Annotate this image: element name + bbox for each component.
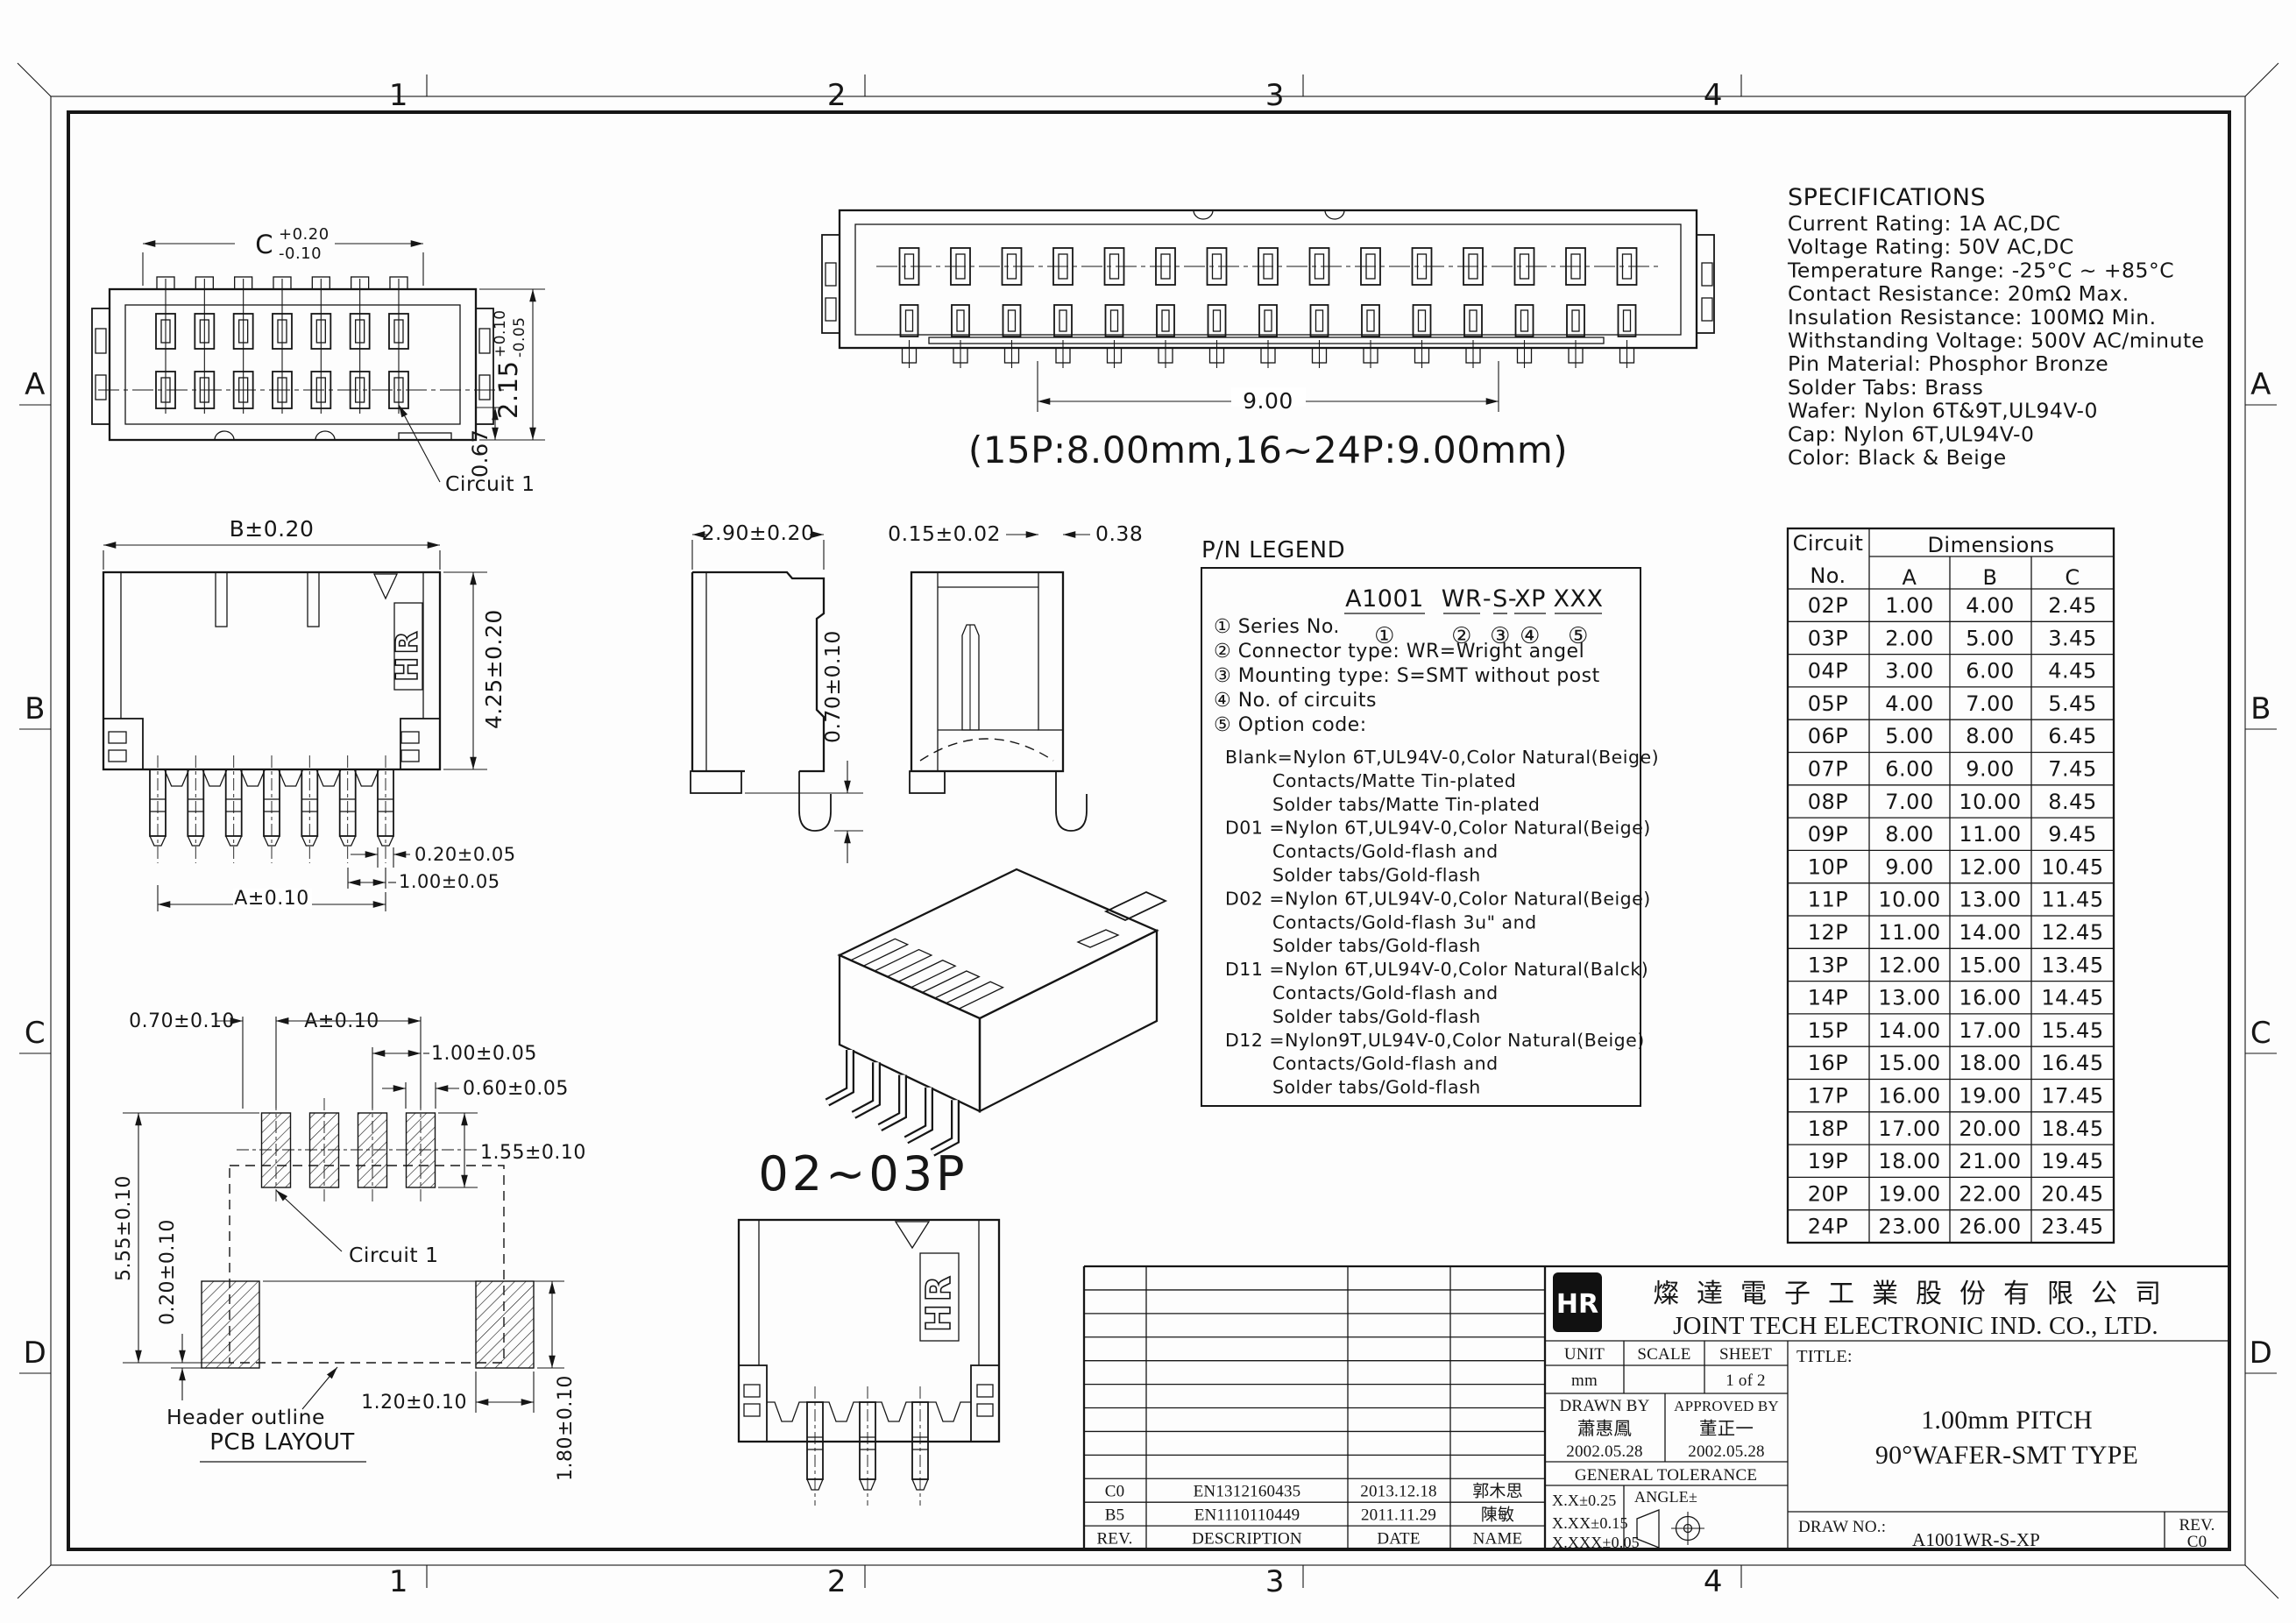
table-cell: 18.45: [2041, 1116, 2103, 1141]
table-cell: 1.00: [1885, 593, 1933, 618]
dim-b: B±0.20: [230, 516, 315, 542]
zone-label-bottom: 4: [1704, 1564, 1723, 1599]
pin-bottom-detail: [1214, 310, 1221, 331]
pn-option: Contacts/Gold-flash and: [1272, 982, 1499, 1003]
drawing-sheet: 12341234ABCDABCD C +0.20 -0.10 2.15 +0.1…: [0, 0, 2296, 1623]
table-cell: 12.00: [1959, 854, 2021, 879]
dim-038: 0.38: [1095, 521, 1143, 546]
company-logo-text: HR: [1556, 1289, 1598, 1320]
table-cell: 07P: [1808, 757, 1849, 782]
rev-cell: C0: [1105, 1483, 1125, 1501]
pn-seg4: XP: [1514, 585, 1546, 613]
table-cell: 12.00: [1878, 953, 1940, 977]
dim-c-tol-up: +0.20: [279, 225, 330, 244]
iso-slot: [851, 939, 908, 966]
trim-mark: [18, 63, 51, 96]
pn-option: Solder tabs/Matte Tin-plated: [1272, 794, 1540, 815]
table-cell: 5.45: [2048, 691, 2096, 716]
table-cell: 10P: [1808, 854, 1849, 879]
table-cell: 14.45: [2041, 986, 2103, 1010]
pn-seg1: A1001: [1345, 585, 1424, 613]
approved-name: 董正一: [1699, 1419, 1754, 1439]
table-cell: 8.45: [2048, 790, 2096, 814]
tol-3: X.XXX±0.05: [1552, 1534, 1640, 1551]
table-cell: 9.45: [2048, 822, 2096, 847]
dim-020: 0.20±0.05: [415, 844, 516, 865]
iso-slot: [875, 950, 932, 977]
rev-header: DESCRIPTION: [1192, 1530, 1302, 1549]
th-dimensions: Dimensions: [1927, 533, 2054, 557]
drawn-date: 2002.05.28: [1566, 1442, 1643, 1461]
dim-215: 2.15: [493, 360, 523, 419]
pin-bottom-detail: [1419, 310, 1426, 331]
table-cell: 19P: [1808, 1149, 1849, 1173]
zone-label-top: 1: [389, 78, 408, 113]
th-circuit: Circuit: [1793, 531, 1864, 556]
spec-line: Pin Material: Phosphor Bronze: [1788, 351, 2108, 376]
table-cell: 03P: [1808, 626, 1849, 650]
spec-line: Cap: Nylon 6T,UL94V-0: [1788, 422, 2034, 446]
trim-mark: [2245, 63, 2278, 96]
table-cell: 13.45: [2041, 953, 2103, 977]
pn-legend: P/N LEGEND A1001 WR - S - XP XXX ① ② ③ ④…: [1201, 537, 1659, 1106]
table-cell: 3.00: [1885, 659, 1933, 684]
table-cell: 5.00: [1966, 626, 2014, 650]
table-cell: 24P: [1808, 1215, 1849, 1239]
pn-option: Solder tabs/Gold-flash: [1272, 1077, 1481, 1098]
unit-value: mm: [1571, 1371, 1598, 1390]
table-cell: 9.00: [1885, 854, 1933, 879]
table-cell: 2.45: [2048, 593, 2096, 618]
draw-no-value: A1001WR-S-XP: [1912, 1529, 2040, 1550]
dim-067: 0.67: [468, 429, 493, 478]
spec-title: SPECIFICATIONS: [1788, 184, 1986, 211]
table-cell: 5.00: [1885, 724, 1933, 748]
iso-slot: [898, 960, 955, 988]
pin-bottom-detail: [1572, 310, 1579, 331]
table-cell: 23.45: [2041, 1215, 2103, 1239]
th-a: A: [1903, 565, 1917, 590]
iso-slot: [946, 982, 1003, 1009]
table-cell: 9.00: [1966, 757, 2014, 782]
pn-item: ② Connector type: WR=Wright angel: [1214, 641, 1584, 663]
rev-cell: 2011.11.29: [1361, 1506, 1436, 1525]
sheet-value: 1 of 2: [1726, 1371, 1766, 1390]
hr-logo: HR: [390, 628, 425, 682]
spec-line: Color: Black & Beige: [1788, 445, 2007, 470]
table-cell: 12P: [1808, 920, 1849, 945]
unit-label: UNIT: [1564, 1345, 1605, 1364]
pn-option: D12 =Nylon9T,UL94V-0,Color Natural(Beige…: [1225, 1030, 1645, 1051]
pn-option: D01 =Nylon 6T,UL94V-0,Color Natural(Beig…: [1225, 818, 1651, 839]
table-cell: 4.45: [2048, 659, 2096, 684]
table-cell: 17.00: [1878, 1116, 1940, 1141]
drawn-name: 蕭惠鳳: [1577, 1419, 1632, 1439]
pn-option: Contacts/Gold-flash and: [1272, 1053, 1499, 1074]
pin-bottom-detail: [1470, 310, 1477, 331]
table-cell: 13P: [1808, 953, 1849, 977]
spec-line: Insulation Resistance: 100MΩ Min.: [1788, 305, 2157, 330]
table-cell: 06P: [1808, 724, 1849, 748]
dim-a: A±0.10: [234, 888, 308, 910]
zone-label-top: 2: [827, 78, 847, 113]
table-cell: 8.00: [1966, 724, 2014, 748]
pin-bottom-detail: [1367, 310, 1374, 331]
trim-mark: [18, 1565, 51, 1598]
zone-label-right: D: [2250, 1336, 2273, 1371]
th-b: B: [1983, 565, 1998, 590]
company-name-cn: 燦達電子工業股份有限公司: [1653, 1279, 2179, 1308]
table-cell: 08P: [1808, 790, 1849, 814]
rev-cell: EN1110110449: [1194, 1506, 1300, 1525]
table-cell: 22.00: [1959, 1181, 2021, 1206]
table-cell: 04P: [1808, 659, 1849, 684]
table-cell: 20P: [1808, 1181, 1849, 1206]
zone-label-left: C: [25, 1016, 46, 1051]
pcb-tab-pad: [202, 1281, 259, 1368]
spec-line: Voltage Rating: 50V AC,DC: [1788, 235, 2074, 259]
table-cell: 13.00: [1878, 986, 1940, 1010]
spec-line: Current Rating: 1A AC,DC: [1788, 211, 2060, 236]
dim-015: 0.15±0.02: [888, 521, 1001, 546]
table-cell: 18.00: [1878, 1149, 1940, 1173]
table-cell: 16P: [1808, 1051, 1849, 1075]
pcb-title: PCB LAYOUT: [209, 1429, 355, 1456]
table-cell: 7.45: [2048, 757, 2096, 782]
dim-c: C: [255, 230, 273, 259]
table-cell: 4.00: [1966, 593, 2014, 618]
pcb-dim-padh: 1.55±0.10: [480, 1142, 586, 1164]
zone-label-right: C: [2250, 1016, 2271, 1051]
pn-option: Solder tabs/Gold-flash: [1272, 865, 1481, 886]
pin-bottom-detail: [1059, 310, 1067, 331]
table-cell: 15.00: [1878, 1051, 1940, 1075]
zone-label-bottom: 1: [389, 1564, 408, 1599]
pin-bottom-detail: [1316, 310, 1323, 331]
draw-no-label: DRAW NO.:: [1798, 1518, 1886, 1536]
approved-date: 2002.05.28: [1688, 1442, 1765, 1461]
pn-item: ③ Mounting type: S=SMT without post: [1214, 665, 1600, 687]
table-cell: 26.00: [1959, 1215, 2021, 1239]
zone-label-bottom: 3: [1265, 1564, 1285, 1599]
top-view: C +0.20 -0.10 2.15 +0.10 -0.05 0.67 Circ…: [92, 225, 545, 496]
spec-line: Wafer: Nylon 6T&9T,UL94V-0: [1788, 399, 2098, 423]
table-cell: 15.45: [2041, 1018, 2103, 1043]
table-cell: 20.00: [1959, 1116, 2021, 1141]
table-cell: 14.00: [1878, 1018, 1940, 1043]
zone-label-right: A: [2250, 367, 2271, 402]
angle-label: ANGLE±: [1634, 1488, 1697, 1506]
pn-option: Contacts/Gold-flash 3u" and: [1272, 911, 1537, 932]
rev-header: REV.: [1096, 1530, 1132, 1549]
table-cell: 19.00: [1959, 1084, 2021, 1109]
table-cell: 17.00: [1959, 1018, 2021, 1043]
table-cell: 12.45: [2041, 920, 2103, 945]
rev-cell: 陳敏: [1481, 1506, 1514, 1525]
table-cell: 05P: [1808, 691, 1849, 716]
zone-label-bottom: 2: [827, 1564, 847, 1599]
pcb-layout: 0.70±0.10 A±0.10 1.00±0.05 0.60±0.05 1.5…: [113, 1010, 586, 1481]
table-cell: 02P: [1808, 593, 1849, 618]
table-cell: 18P: [1808, 1116, 1849, 1141]
table-cell: 15.00: [1959, 953, 2021, 977]
pn-seg5: XXX: [1554, 585, 1604, 613]
side-view: 2.90±0.20 0.70±0.10: [691, 521, 863, 863]
pin-bottom-detail: [1521, 310, 1528, 331]
table-cell: 6.45: [2048, 724, 2096, 748]
drawn-label: DRAWN BY: [1560, 1397, 1650, 1415]
rev-label: REV.: [2179, 1516, 2215, 1534]
pcb-dim-tabw: 1.20±0.10: [361, 1392, 467, 1414]
bottom-scallop: [767, 1402, 971, 1421]
pin-bottom-detail: [957, 310, 964, 331]
pcb-dim-gap: 0.20±0.10: [157, 1219, 179, 1325]
table-cell: 17.45: [2041, 1084, 2103, 1109]
table-cell: 14.00: [1959, 920, 2021, 945]
trim-mark: [2245, 1565, 2278, 1598]
approved-label: APPROVED BY: [1674, 1398, 1779, 1414]
pcb-dim-height: 5.55±0.10: [113, 1175, 135, 1281]
isometric-view: [827, 869, 1166, 1152]
spec-line: Solder Tabs: Brass: [1788, 375, 1983, 400]
pin-bottom-detail: [1265, 310, 1272, 331]
variant-view: 02~03P HR: [739, 1146, 999, 1506]
specifications: SPECIFICATIONS Current Rating: 1A AC,DCV…: [1787, 184, 2205, 470]
table-cell: 6.00: [1966, 659, 2014, 684]
section-view: 0.15±0.02 0.38: [888, 521, 1143, 831]
table-cell: 19.45: [2041, 1149, 2103, 1173]
pn-option: D11 =Nylon 6T,UL94V-0,Color Natural(Balc…: [1225, 959, 1648, 980]
table-cell: 21.00: [1959, 1149, 2021, 1173]
pn-sep1: -: [1483, 585, 1492, 613]
dim-215-tol-dn: -0.05: [511, 317, 528, 358]
zone-label-right: B: [2250, 691, 2271, 726]
spec-line: Temperature Range: -25°C ~ +85°C: [1787, 258, 2174, 282]
pn-item: ① Series No.: [1214, 616, 1340, 638]
long-view: 9.00 (15P:8.00mm,16~24P:9.00mm): [822, 210, 1714, 471]
company-name-en: JOINT TECH ELECTRONIC IND. CO., LTD.: [1673, 1312, 2158, 1340]
table-cell: 4.00: [1885, 691, 1933, 716]
rev-cell: 2013.12.18: [1360, 1483, 1437, 1501]
th-c: C: [2065, 565, 2080, 590]
dim-290: 2.90±0.20: [702, 521, 815, 545]
pcb-header-outline: Header outline: [167, 1405, 325, 1429]
pn-seg3: S: [1492, 585, 1508, 613]
pcb-tab-pad: [476, 1281, 534, 1368]
rev-cell: 郭木思: [1472, 1482, 1523, 1501]
table-cell: 19.00: [1878, 1181, 1940, 1206]
drawing-canvas: 12341234ABCDABCD C +0.20 -0.10 2.15 +0.1…: [0, 0, 2296, 1623]
table-cell: 3.45: [2048, 626, 2096, 650]
rev-header: NAME: [1473, 1530, 1523, 1549]
table-cell: 11.00: [1878, 920, 1940, 945]
pitch-note: (15P:8.00mm,16~24P:9.00mm): [968, 429, 1568, 471]
revision-table: REV.DESCRIPTIONDATENAMEC0EN1312160435201…: [1084, 1266, 1545, 1549]
table-cell: 8.00: [1885, 822, 1933, 847]
dim-c-tol-dn: -0.10: [279, 245, 322, 263]
table-cell: 13.00: [1959, 888, 2021, 912]
pcb-dim-tabh: 1.80±0.10: [555, 1375, 577, 1481]
dimensions-table: Circuit No. Dimensions A B C 02P1.004.00…: [1788, 528, 2114, 1243]
pn-option: D02 =Nylon 6T,UL94V-0,Color Natural(Beig…: [1225, 888, 1651, 909]
general-tolerance: GENERAL TOLERANCE: [1575, 1466, 1757, 1485]
variant-label: 02~03P: [758, 1146, 967, 1201]
pcb-dim-pitch: 1.00±0.05: [431, 1043, 537, 1065]
title-line1: 1.00mm PITCH: [1921, 1406, 2093, 1435]
table-cell: 10.45: [2041, 854, 2103, 879]
table-cell: 2.00: [1885, 626, 1933, 650]
table-cell: 10.00: [1878, 888, 1940, 912]
pin-bottom-detail: [1162, 310, 1169, 331]
dim-900: 9.00: [1243, 388, 1293, 414]
pin-bottom-detail: [1624, 310, 1631, 331]
rev-value: C0: [2187, 1533, 2207, 1551]
pn-option: Blank=Nylon 6T,UL94V-0,Color Natural(Bei…: [1225, 747, 1659, 768]
pn-title: P/N LEGEND: [1201, 537, 1345, 563]
circuit1-label: Circuit 1: [445, 471, 535, 496]
sheet-label: SHEET: [1719, 1345, 1772, 1364]
table-cell: 11.45: [2041, 888, 2103, 912]
title-line2: 90°WAFER-SMT TYPE: [1875, 1441, 2138, 1470]
table-cell: 18.00: [1959, 1051, 2021, 1075]
table-cell: 11.00: [1959, 822, 2021, 847]
tol-2: X.XX±0.15: [1552, 1514, 1628, 1532]
pn-option: Solder tabs/Gold-flash: [1272, 935, 1481, 956]
pcb-circuit1: Circuit 1: [349, 1243, 439, 1267]
front-view: B±0.20 HR 4.25±0.20 0.20±0.05 1.00±0.05 …: [103, 516, 516, 911]
pn-item: ⑤ Option code:: [1214, 714, 1367, 736]
pin-bottom-detail: [906, 310, 913, 331]
iso-slot: [922, 971, 979, 998]
table-cell: 11P: [1808, 888, 1849, 912]
rev-cell: B5: [1105, 1506, 1125, 1525]
table-cell: 7.00: [1966, 691, 2014, 716]
dim-100: 1.00±0.05: [399, 871, 500, 892]
spec-line: Contact Resistance: 20mΩ Max.: [1788, 281, 2129, 306]
dim-070: 0.70±0.10: [820, 630, 845, 743]
pn-option: Contacts/Matte Tin-plated: [1272, 770, 1516, 791]
rev-header: DATE: [1377, 1530, 1420, 1549]
zone-label-top: 4: [1704, 78, 1723, 113]
table-cell: 20.45: [2041, 1181, 2103, 1206]
table-cell: 17P: [1808, 1084, 1849, 1109]
third-angle-projection-icon: [1637, 1510, 1704, 1548]
zone-label-left: B: [25, 691, 46, 726]
table-cell: 7.00: [1885, 790, 1933, 814]
table-cell: 09P: [1808, 822, 1849, 847]
table-cell: 10.00: [1959, 790, 2021, 814]
pn-seg2: WR: [1442, 585, 1482, 613]
pin-bottom-detail: [1009, 310, 1016, 331]
tol-1: X.X±0.25: [1552, 1492, 1616, 1509]
table-cell: 6.00: [1885, 757, 1933, 782]
dim-425: 4.25±0.20: [481, 609, 507, 729]
table-cell: 16.45: [2041, 1051, 2103, 1075]
pn-option: Solder tabs/Gold-flash: [1272, 1006, 1481, 1027]
table-cell: 15P: [1808, 1018, 1849, 1043]
pin-bottom-detail: [1111, 310, 1118, 331]
scale-label: SCALE: [1637, 1345, 1690, 1364]
table-cell: 14P: [1808, 986, 1849, 1010]
pcb-dim-padw: 0.60±0.05: [463, 1078, 569, 1100]
pn-option: Contacts/Gold-flash and: [1272, 841, 1499, 862]
pn-item: ④ No. of circuits: [1214, 690, 1377, 712]
th-no: No.: [1810, 563, 1846, 588]
zone-label-top: 3: [1265, 78, 1285, 113]
table-cell: 23.00: [1878, 1215, 1940, 1239]
spec-line: Withstanding Voltage: 500V AC/minute: [1788, 329, 2205, 353]
table-cell: 16.00: [1878, 1084, 1940, 1109]
dim-215-tol-up: +0.10: [492, 309, 509, 358]
rev-cell: EN1312160435: [1194, 1483, 1301, 1501]
table-cell: 16.00: [1959, 986, 2021, 1010]
title-label: TITLE:: [1796, 1347, 1853, 1366]
hr-logo-variant: HR: [919, 1273, 958, 1332]
zone-label-left: A: [25, 367, 46, 402]
zone-label-left: D: [24, 1336, 47, 1371]
